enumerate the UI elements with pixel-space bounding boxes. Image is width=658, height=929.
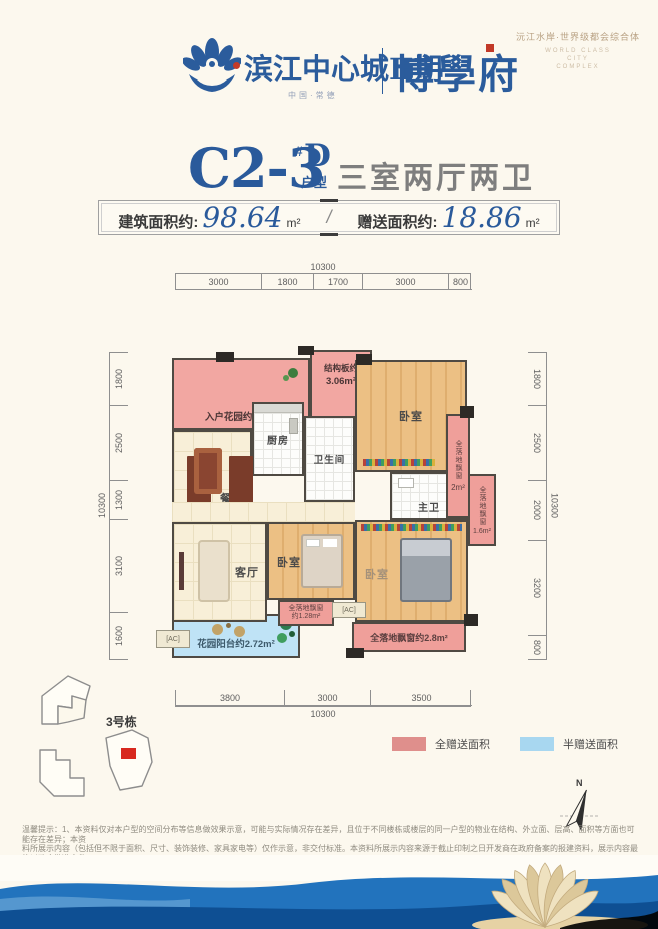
- room-label: 主卫: [418, 499, 440, 514]
- dimension-chain-left: 10300 1800 2500 1300 3100 1600: [94, 352, 128, 660]
- bed-graphic: [400, 538, 452, 602]
- dim-seg: 2500: [528, 406, 546, 481]
- dim-top-segments: 3000 1800 1700 3000 800: [175, 274, 471, 290]
- balcony-chairs-graphic: [212, 624, 223, 635]
- room-label: 客厅: [235, 564, 259, 580]
- dimension-chain-right: 1800 2500 2000 3200 800 10300: [528, 352, 562, 660]
- ac-label: [AC]: [342, 607, 356, 614]
- bay-window-2: 全落地飘窗 2m²: [446, 414, 470, 518]
- dim-bottom-total: 10300: [175, 706, 471, 719]
- wall-stub: [356, 354, 372, 365]
- bay-area: 2m²: [451, 483, 465, 492]
- dim-seg: 1800: [110, 353, 128, 406]
- red-seal-dot-icon: [233, 62, 240, 69]
- dim-total-label: 10300: [550, 493, 560, 518]
- wave-decoration: [0, 855, 658, 929]
- dim-seg: 3800: [176, 690, 285, 706]
- wall-stub: [464, 614, 478, 626]
- dim-seg: 1700: [314, 274, 363, 290]
- logo-divider: [382, 48, 383, 94]
- room-label: 卫生间: [314, 452, 346, 466]
- room-area: 3.06m²: [326, 376, 356, 387]
- floorplan-poster: 滨江中心城Ⅱ期 中国·常德 博學府 沅江水岸·世界级都会综合体 WORLD CL…: [0, 0, 658, 929]
- bay-label: 全落地飘窗约2.8m²: [370, 631, 448, 644]
- bed-graphic: [301, 534, 343, 588]
- wardrobe-graphic: [361, 524, 462, 531]
- unit-hash: #: [295, 143, 303, 159]
- banner-dash-bottom: [320, 233, 338, 236]
- gift-area-unit: m²: [526, 216, 540, 230]
- wall-stub: [298, 346, 314, 355]
- building-label: 3号栋: [106, 714, 137, 729]
- bay-label: 全落地飘窗: [289, 605, 324, 613]
- dim-right-total: 10300: [546, 352, 562, 660]
- sink-graphic: [398, 478, 414, 488]
- unit-type-label: 户型: [301, 172, 327, 191]
- ac-pad-2: [AC]: [332, 602, 366, 618]
- legend-label: 全赠送面积: [435, 736, 490, 752]
- wall-stub: [346, 648, 364, 658]
- disclaimer-line: 温馨提示：1、本资料仅对本户型的空间分布等信息做效果示意，可能与实际情况存在差异…: [22, 825, 638, 844]
- dim-total-label: 10300: [97, 493, 107, 518]
- dim-seg: 1800: [528, 353, 546, 406]
- highlighted-unit: [121, 748, 136, 759]
- dim-bottom-segments: 3800 3000 3500: [175, 690, 471, 706]
- dim-seg: 3000: [176, 274, 262, 290]
- bay-area: 约1.28m²: [292, 613, 321, 621]
- full-gift-swatch: [392, 737, 426, 751]
- gift-area-value: 18.86: [442, 201, 522, 234]
- project-subtitle: 中国·常德: [288, 90, 338, 101]
- dim-left-segments: 1800 2500 1300 3100 1600: [110, 352, 128, 660]
- bay-window-128: 全落地飘窗 约1.28m²: [278, 600, 334, 626]
- project-name: 滨江中心城Ⅱ期: [244, 46, 384, 88]
- brand-name: 博學府: [394, 42, 520, 100]
- tagline: 沅江水岸·世界级都会综合体 WORLD CLASS CITY COMPLEX: [516, 30, 640, 71]
- dim-seg: 2500: [110, 406, 128, 481]
- room-label: 卧室: [399, 408, 423, 424]
- tagline-en-line2: CITY: [516, 55, 640, 63]
- dim-right-segments: 1800 2500 2000 3200 800: [528, 352, 546, 660]
- banner-divider: /: [326, 207, 331, 228]
- dim-seg: 2000: [528, 481, 546, 541]
- tagline-en: WORLD CLASS CITY COMPLEX: [516, 47, 640, 71]
- built-area: 建筑面积约: 98.64 m²: [118, 201, 300, 234]
- room-label: 卧室: [277, 554, 301, 570]
- tagline-en-line1: WORLD CLASS: [516, 47, 640, 55]
- area-banner: 建筑面积约: 98.64 m² / 赠送面积约: 18.86 m²: [98, 200, 560, 235]
- dim-seg: 3200: [528, 541, 546, 636]
- wall-stub: [460, 406, 474, 418]
- room-label: 结构板约: [324, 362, 358, 374]
- half-gift-swatch: [520, 737, 554, 751]
- keyplan-map-icon: 3号栋: [28, 666, 160, 808]
- legend-label: 半赠送面积: [563, 736, 618, 752]
- dimension-chain-top: 10300 3000 1800 1700 3000 800: [175, 262, 471, 290]
- sofa-graphic: [198, 540, 230, 602]
- stove-graphic: [289, 418, 298, 434]
- bay-window-16: 全落地飘窗 1.6m²: [468, 474, 496, 546]
- kitchen-counter-graphic: [254, 404, 302, 413]
- built-area-unit: m²: [286, 216, 300, 230]
- legend-half-gift: 半赠送面积: [520, 736, 618, 752]
- dim-seg: 800: [449, 274, 472, 290]
- room-label: 卧室: [365, 566, 389, 582]
- pillow-graphic: [306, 539, 320, 547]
- dim-seg: 3100: [110, 520, 128, 613]
- dimension-chain-bottom: 3800 3000 3500 10300: [175, 690, 471, 719]
- room-bathroom: 卫生间: [304, 416, 355, 502]
- room-bedroom-master: 卧室: [355, 520, 468, 622]
- dim-seg: 1300: [110, 481, 128, 520]
- dim-seg: 3000: [363, 274, 449, 290]
- tagline-cn: 沅江水岸·世界级都会综合体: [516, 30, 640, 43]
- legend-full-gift: 全赠送面积: [392, 736, 490, 752]
- wall-stub: [216, 352, 234, 362]
- room-label: 花园阳台约2.72m²: [197, 636, 275, 650]
- gift-area-label: 赠送面积约:: [358, 211, 438, 232]
- plant-graphic: [288, 368, 298, 378]
- room-label: 厨房: [267, 432, 289, 447]
- room-bedroom-mid: 卧室: [267, 522, 355, 600]
- room-kitchen: 厨房: [252, 402, 304, 476]
- dim-seg: 1800: [262, 274, 314, 290]
- legend: 全赠送面积 半赠送面积: [392, 736, 618, 752]
- dim-seg: 3000: [285, 690, 371, 706]
- shelf-graphic: [363, 459, 435, 466]
- tagline-en-line3: COMPLEX: [516, 63, 640, 71]
- floorplan: 入户花园约5.4m² 结构板约 3.06m² 卧室 全落地飘窗 2m² 厨房 卫…: [170, 346, 522, 668]
- unit-letter: D: [304, 138, 331, 174]
- dim-top-total: 10300: [175, 262, 471, 274]
- dim-seg: 3500: [371, 690, 472, 706]
- banner-dash-top: [320, 199, 338, 202]
- gift-area: 赠送面积约: 18.86 m²: [358, 201, 540, 234]
- dim-seg: 1600: [110, 613, 128, 659]
- bay-label: 全落地飘窗: [454, 440, 462, 480]
- dim-seg: 800: [528, 636, 546, 659]
- bay-area: 1.6m²: [473, 528, 491, 535]
- built-area-value: 98.64: [202, 201, 282, 234]
- brand-seal-icon: [486, 44, 494, 52]
- dining-table-graphic: [194, 448, 222, 494]
- ac-pad-1: [AC]: [156, 630, 190, 648]
- built-area-label: 建筑面积约:: [118, 211, 198, 232]
- rooms-description: 三室两厅两卫: [337, 153, 535, 197]
- tv-graphic: [179, 552, 184, 590]
- room-living: 客厅: [172, 522, 267, 622]
- ac-label: [AC]: [166, 636, 180, 643]
- bay-window-28: 全落地飘窗约2.8m²: [352, 622, 466, 652]
- compass-north-label: N: [576, 778, 583, 788]
- site-keyplan: 3号栋: [28, 666, 160, 813]
- bay-label: 全落地飘窗: [478, 486, 486, 526]
- dim-left-total: 10300: [94, 352, 110, 660]
